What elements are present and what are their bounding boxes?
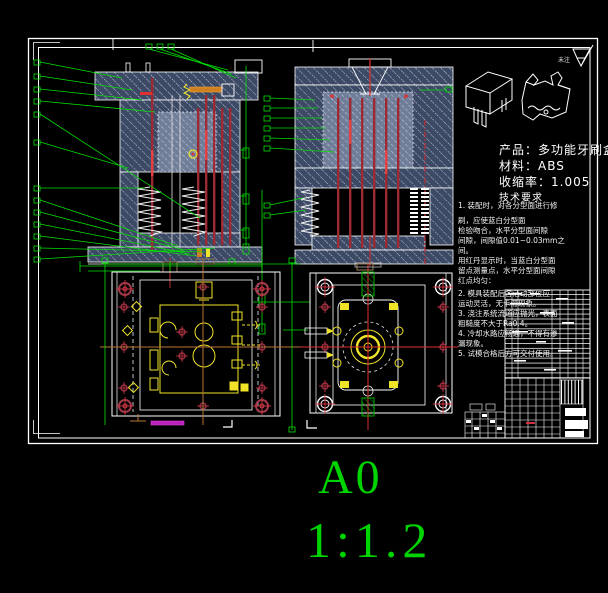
return-spring-left xyxy=(138,187,161,236)
tech-note-line: 运动灵活，无卡滞现象。 xyxy=(458,300,594,308)
spacer-rail-right-2 xyxy=(430,188,453,245)
iso-view-lid xyxy=(522,72,570,120)
tech-note-line: 2. 模具装配后各活动部位应 xyxy=(458,290,594,298)
tech-note-line: 间。 xyxy=(458,247,594,255)
tech-note-line: 刷，应使蓝白分型面 xyxy=(458,217,594,225)
corner-bracket-mark xyxy=(223,420,232,427)
tech-note-line: 粗糙度不大于Ra0.4。 xyxy=(458,320,594,328)
centerlines-plan-left xyxy=(100,258,302,425)
plan-view-moving-half xyxy=(100,258,310,432)
toothed-retainer-left xyxy=(410,188,418,236)
sheet-scale-label: 1:1.2 xyxy=(306,511,432,569)
corner-bracket-mark-2 xyxy=(307,420,317,428)
bottom-clamp-plate-2 xyxy=(295,250,453,264)
signature-marks xyxy=(466,414,502,430)
tech-note-line: 3. 浇注系统流道应抛光，表面 xyxy=(458,310,594,318)
callout-symbols-right xyxy=(240,66,265,334)
tech-note-line: 间隙，间隙值0.01~0.03mm之 xyxy=(458,237,594,245)
tech-note-line: 用红丹显示时，当蓝白分型面 xyxy=(458,257,594,265)
tech-note-line: 漏现象。 xyxy=(458,340,594,348)
surface-finish-note: 未注 xyxy=(558,55,570,64)
locating-ring-outline xyxy=(235,60,262,73)
cavity-layout xyxy=(123,282,262,393)
return-spring-right xyxy=(182,187,205,236)
magenta-highlight-bar xyxy=(151,421,184,425)
tech-note-line: 检验吻合，水平分型面间隙 xyxy=(458,227,594,235)
section-view-side xyxy=(295,58,453,270)
top-clamp-plate-2 xyxy=(295,67,453,85)
center-cavity-detail xyxy=(305,294,403,396)
section-view-front xyxy=(80,60,262,288)
tech-note-line: 5. 试模合格后方可交付使用。 xyxy=(458,350,594,358)
red-table-mark xyxy=(526,422,535,424)
core-insert-2 xyxy=(323,92,413,168)
tech-note-line: 留点测量点，水平分型面间隙 xyxy=(458,267,594,275)
guide-pillar-targets xyxy=(315,277,453,414)
material-label: 材料：ABS xyxy=(499,157,565,174)
iso-part-views xyxy=(466,72,570,127)
shrinkage-label: 收缩率：1.005 xyxy=(499,173,590,190)
cad-drawing-canvas: 产品：多功能牙刷盒 材料：ABS 收缩率：1.005 技术要求 未注 1. 装配… xyxy=(0,0,608,593)
plan-view-fixed-half xyxy=(300,263,458,430)
toothed-retainer-right xyxy=(421,188,429,236)
ejector-plate-2 xyxy=(312,236,425,250)
iso-view-box xyxy=(466,72,512,127)
sheet-size-label: A0 xyxy=(318,450,383,505)
tech-note-line: 1. 装配时，对各分型面进行修 xyxy=(458,202,594,210)
product-label: 产品：多功能牙刷盒 xyxy=(499,141,608,158)
tech-note-line: 红点均匀： xyxy=(458,277,594,285)
striped-cell xyxy=(560,380,583,404)
tech-note-line: 4. 冷却水路应畅通，不得有渗 xyxy=(458,330,594,338)
